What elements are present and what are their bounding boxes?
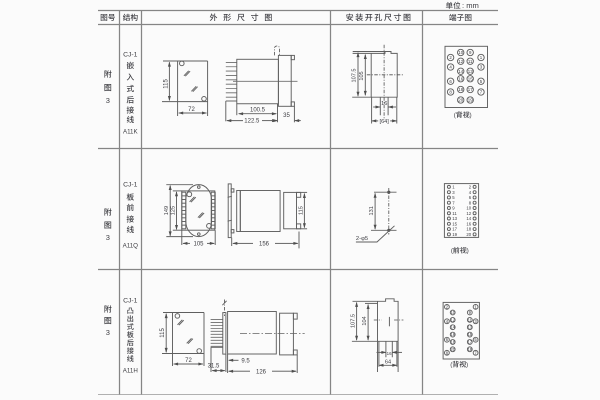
svg-text:4: 4 — [449, 65, 452, 70]
svg-text:64: 64 — [385, 360, 391, 366]
svg-text:20: 20 — [458, 98, 463, 103]
svg-text:72: 72 — [188, 107, 195, 113]
svg-text:15: 15 — [452, 221, 457, 226]
svg-text:19: 19 — [467, 347, 472, 352]
svg-text:3: 3 — [106, 96, 110, 105]
svg-text:3: 3 — [452, 190, 455, 195]
svg-text:18: 18 — [466, 227, 471, 232]
svg-text:12: 12 — [458, 59, 463, 64]
svg-text:CJ-1: CJ-1 — [123, 51, 138, 58]
svg-text:17: 17 — [452, 227, 457, 232]
svg-text:16: 16 — [466, 221, 471, 226]
svg-text:11: 11 — [468, 317, 473, 322]
svg-text:126: 126 — [256, 369, 267, 375]
svg-text:10: 10 — [458, 50, 463, 55]
svg-text:72: 72 — [185, 358, 192, 364]
svg-text:107.5: 107.5 — [350, 314, 356, 328]
svg-text:115: 115 — [160, 328, 166, 338]
svg-text:107.5: 107.5 — [352, 69, 358, 83]
svg-text:): ) — [467, 248, 469, 255]
svg-text:14: 14 — [450, 325, 455, 330]
svg-text:12: 12 — [450, 317, 455, 322]
svg-text:105: 105 — [193, 242, 204, 248]
svg-text:9: 9 — [452, 206, 455, 211]
svg-text:14: 14 — [458, 69, 463, 74]
svg-text:100.5: 100.5 — [250, 108, 266, 114]
svg-text:13: 13 — [467, 325, 472, 330]
svg-text:8: 8 — [469, 200, 472, 205]
svg-text:11: 11 — [468, 59, 473, 64]
svg-text:3: 3 — [106, 328, 110, 337]
svg-text:6: 6 — [469, 195, 472, 200]
svg-text:A11H: A11H — [123, 367, 138, 374]
svg-text:10: 10 — [466, 206, 471, 211]
svg-text:CJ-1: CJ-1 — [123, 297, 138, 304]
svg-text:31.5: 31.5 — [208, 364, 220, 370]
svg-text:104: 104 — [362, 316, 368, 325]
svg-text:A11K: A11K — [123, 129, 139, 136]
svg-text:8: 8 — [449, 90, 452, 95]
svg-text:(: ( — [450, 362, 453, 369]
svg-text:2-φ5: 2-φ5 — [356, 236, 368, 242]
svg-text:20: 20 — [450, 347, 455, 352]
svg-text:105: 105 — [359, 71, 365, 80]
svg-text:20: 20 — [466, 232, 471, 237]
svg-text:156: 156 — [259, 242, 270, 248]
svg-text:115: 115 — [163, 79, 169, 89]
svg-text:18: 18 — [458, 87, 463, 92]
svg-text:149: 149 — [164, 206, 170, 215]
svg-text:15: 15 — [468, 76, 473, 81]
svg-text:3: 3 — [480, 65, 483, 70]
svg-text:13: 13 — [468, 69, 473, 74]
svg-text:12: 12 — [466, 211, 471, 216]
svg-text:13: 13 — [452, 216, 457, 221]
svg-text:7: 7 — [452, 200, 455, 205]
svg-text:16: 16 — [387, 351, 392, 356]
svg-text:131: 131 — [369, 206, 375, 215]
svg-text:35: 35 — [283, 113, 290, 119]
svg-text:16: 16 — [381, 101, 387, 107]
svg-text:11: 11 — [452, 211, 457, 216]
svg-text:15: 15 — [467, 332, 472, 337]
svg-text:122.5: 122.5 — [244, 119, 260, 125]
svg-text:[64]: [64] — [380, 119, 390, 125]
svg-text:1: 1 — [480, 55, 483, 60]
svg-text:9: 9 — [469, 50, 472, 55]
svg-text:(: ( — [451, 248, 454, 255]
svg-text:7: 7 — [480, 90, 483, 95]
svg-text:4: 4 — [469, 190, 472, 195]
svg-text:6: 6 — [449, 79, 452, 84]
svg-text:16: 16 — [450, 332, 455, 337]
svg-text:3: 3 — [106, 233, 110, 242]
svg-text:115: 115 — [298, 206, 304, 215]
svg-text:1: 1 — [452, 185, 455, 190]
svg-text:): ) — [470, 112, 472, 119]
svg-text:A11Q: A11Q — [123, 242, 139, 249]
svg-text:17: 17 — [468, 87, 473, 92]
svg-text:CJ-1: CJ-1 — [123, 181, 138, 188]
svg-text:): ) — [466, 362, 468, 369]
svg-text:: mm: : mm — [462, 1, 479, 10]
svg-text:18: 18 — [450, 339, 455, 344]
svg-text:5: 5 — [452, 195, 455, 200]
svg-text:17: 17 — [467, 339, 472, 344]
svg-text:125: 125 — [171, 206, 177, 215]
svg-text:2: 2 — [469, 185, 472, 190]
svg-text:9.5: 9.5 — [241, 358, 250, 364]
svg-text:16: 16 — [458, 76, 463, 81]
svg-text:5: 5 — [480, 79, 483, 84]
svg-text:14: 14 — [466, 216, 471, 221]
svg-text:10: 10 — [450, 310, 455, 315]
svg-text:19: 19 — [452, 232, 457, 237]
svg-text:(: ( — [454, 112, 457, 119]
svg-text:19: 19 — [468, 98, 473, 103]
svg-text:2: 2 — [449, 55, 452, 60]
